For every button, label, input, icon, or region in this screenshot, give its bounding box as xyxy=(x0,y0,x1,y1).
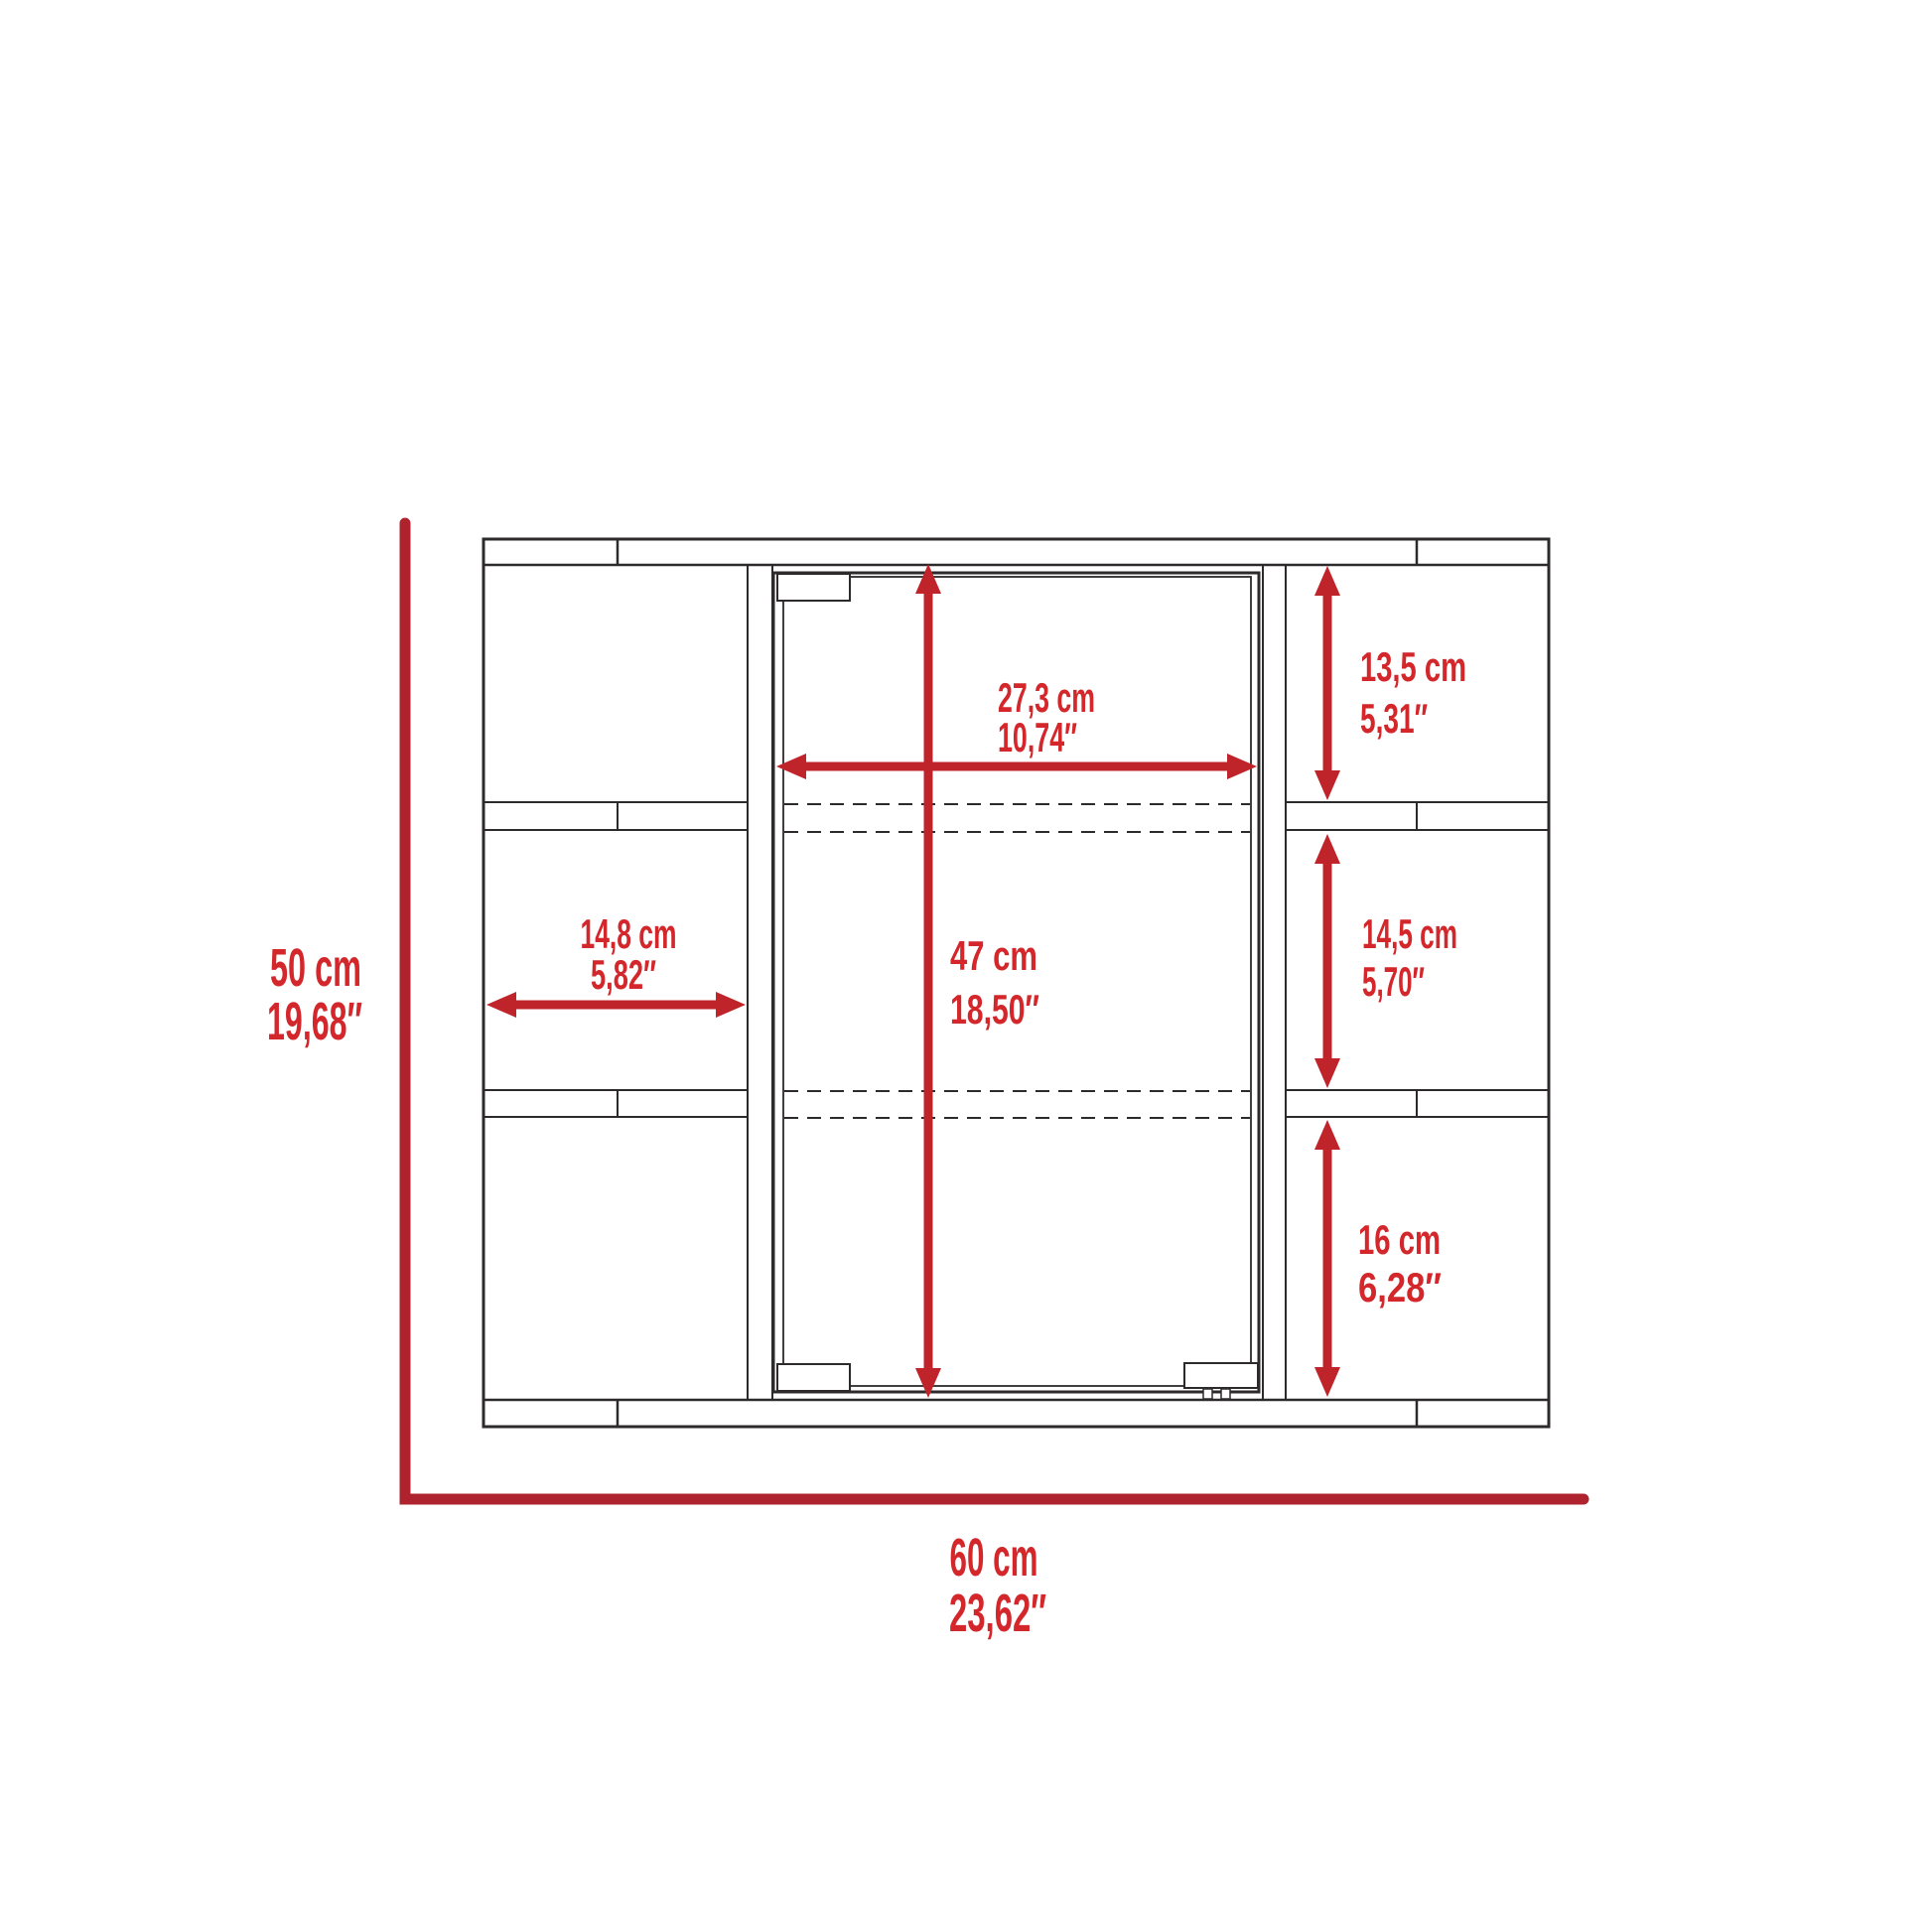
right-shelf2-cm-label: 14,5 cm xyxy=(1362,910,1457,957)
right-shelf1-cm-label: 13,5 cm xyxy=(1360,643,1466,690)
right-shelf1-in-label: 5,31″ xyxy=(1360,695,1428,742)
bottom-hinge xyxy=(777,1364,850,1391)
overall-height-in-label: 19,68″ xyxy=(267,992,362,1051)
overall-width-cm-label: 60 cm xyxy=(950,1528,1038,1587)
door-height-cm-label: 47 cm xyxy=(950,932,1037,979)
dimension-diagram: 50 cm 19,68″ 60 cm 23,62″ 27,3 cm 10,74″… xyxy=(0,0,1932,1932)
overall-height-cm-label: 50 cm xyxy=(270,938,361,998)
left-shelf-width-in-label: 5,82″ xyxy=(591,951,656,998)
door-handle xyxy=(1184,1363,1258,1388)
door-width-in-label: 10,74″ xyxy=(998,714,1077,760)
door-handle-tab xyxy=(1221,1389,1230,1399)
top-hinge xyxy=(777,574,850,601)
overall-width-in-label: 23,62″ xyxy=(949,1584,1046,1643)
right-shelf3-cm-label: 16 cm xyxy=(1358,1216,1441,1263)
diagram-canvas: 50 cm 19,68″ 60 cm 23,62″ 27,3 cm 10,74″… xyxy=(0,0,1932,1932)
left-shelf-width-cm-label: 14,8 cm xyxy=(581,910,677,957)
door-handle-tab xyxy=(1203,1389,1212,1399)
door-height-in-label: 18,50″ xyxy=(950,986,1039,1033)
right-shelf3-in-label: 6,28″ xyxy=(1358,1264,1442,1311)
right-shelf2-in-label: 5,70″ xyxy=(1362,958,1425,1005)
